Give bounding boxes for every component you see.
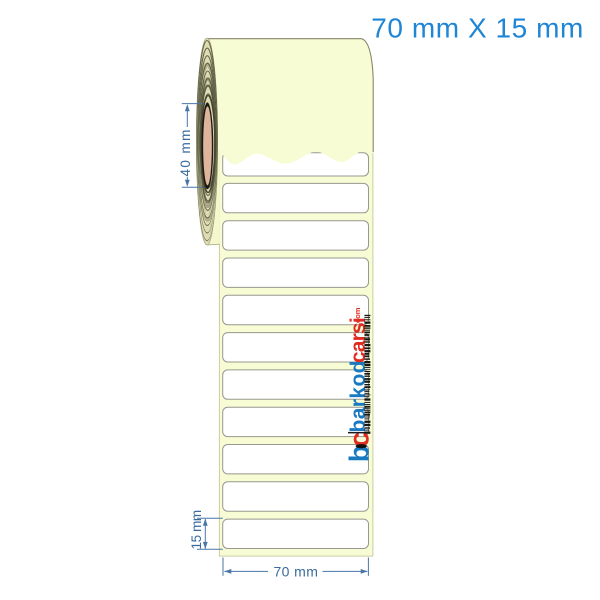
svg-text:70 mm: 70 mm xyxy=(274,564,319,580)
svg-text:15 mm: 15 mm xyxy=(189,510,204,549)
svg-text:70 mm X 15 mm: 70 mm X 15 mm xyxy=(371,13,584,44)
svg-text:40 mm: 40 mm xyxy=(178,128,193,176)
